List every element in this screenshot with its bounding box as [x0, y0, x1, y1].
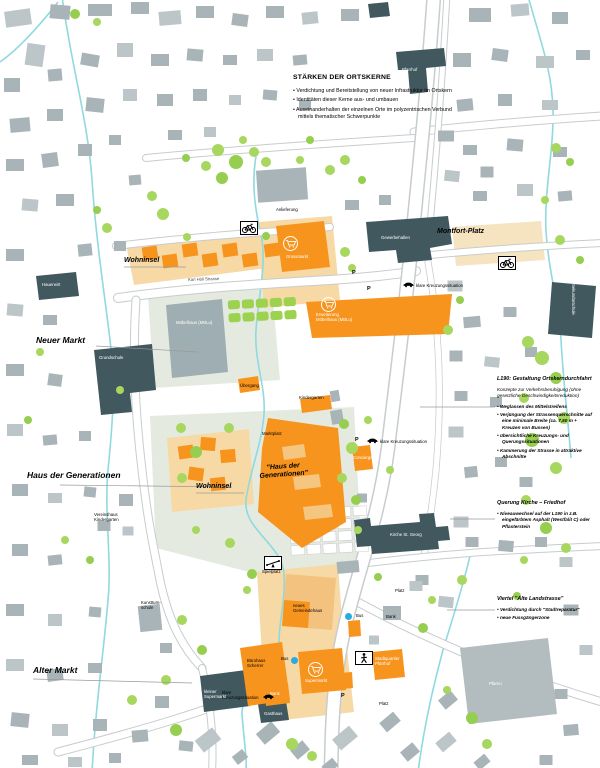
label-wohninsel-sued: Wohninsel	[196, 483, 231, 491]
label-montfort-platz: Montfort-Platz	[437, 228, 484, 236]
label-stadtquartier: Stadtquartier Pfarrhof	[375, 656, 400, 666]
label-alter-markt: Alter Markt	[33, 665, 77, 675]
label-hauerwirt: Hauerwirt	[42, 282, 60, 287]
parking-marker: P	[367, 286, 371, 292]
parking-marker: P	[341, 693, 345, 699]
label-buerohaus: Bürohaus Scherrer	[247, 658, 265, 668]
bicycle-icon	[240, 221, 258, 235]
bus-stop-dot	[345, 613, 352, 620]
label-platz-2: Platz	[379, 701, 389, 706]
cart-icon	[308, 662, 323, 677]
label-pfarrei: Pfarrei	[489, 681, 502, 686]
label-neuer-markt: Neuer Markt	[36, 335, 85, 345]
label-wohninsel-nord: Wohninsel	[124, 257, 159, 265]
map-labels-layer: WohninselNeuer MarktHaus der Generatione…	[0, 0, 600, 768]
pedestrian-icon	[355, 651, 373, 665]
cart-icon	[321, 297, 336, 312]
label-haus-der-generationen: Haus der Generationen	[27, 470, 121, 480]
label-supermarkt: Supermarkt	[305, 678, 327, 683]
label-bus-2: Bus	[281, 656, 288, 661]
masterplan-map: STÄRKEN DER ORTSKERNE Verdichtung und Be…	[0, 0, 600, 768]
label-gemeindehaus: neues Gemeindehaus	[293, 603, 322, 613]
label-bank-grau: Bank	[386, 614, 396, 619]
car-icon	[263, 692, 274, 700]
label-anlieferung: Anlieferung	[276, 207, 298, 212]
label-platz-1: Platz	[395, 588, 405, 593]
parking-marker: P	[355, 437, 359, 443]
label-pfarrhof-top: Pfarrhof	[402, 67, 417, 72]
car-icon	[367, 436, 378, 444]
label-sekundarschule: Sekundarschule	[571, 284, 576, 315]
parking-marker: P	[352, 270, 356, 276]
label-kindergarten: Kindergarten	[299, 395, 324, 400]
label-gewerbehallen: Gewerbehallen	[381, 235, 410, 240]
label-kirche: Kirche St. Georg	[390, 532, 422, 537]
label-kreuzung-1: klare Kreuzungssituation	[416, 283, 463, 288]
bus-stop-dot	[291, 657, 298, 664]
label-grossmarkt: Grossmarkt	[286, 254, 308, 259]
label-hdg-center: "Haus der Generationen"	[259, 462, 308, 482]
label-grundschule: Grundschule	[99, 355, 123, 360]
label-vereinshaus: Vereinshaus Kindergarten	[94, 512, 119, 522]
label-kreuzung-3: klare Kreuzungssituation	[222, 690, 259, 700]
label-erweiterung-moebelhaus: Erweiterung Möbelhaus (MBLu)	[316, 312, 352, 322]
label-kreuzung-2: klare Kreuzungssituation	[380, 439, 427, 444]
bicycle-icon	[498, 256, 516, 270]
label-moebelhaus: Möbelhaus (MBLu)	[176, 320, 212, 325]
label-marktplatz: Marktplatz	[262, 431, 282, 436]
label-karl-holl-strasse: Karl Höll Strasse	[188, 277, 219, 283]
cart-icon	[283, 236, 298, 251]
label-concierge: Concierge	[353, 455, 373, 460]
playground-icon	[264, 556, 282, 570]
label-kleiner-supermarkt: kleiner Supermarkt	[204, 689, 226, 699]
car-icon	[403, 280, 414, 288]
label-bus-1: Bus	[356, 613, 363, 618]
label-uebergang: Übergang	[240, 383, 259, 388]
label-gasthaus: Gasthaus	[264, 711, 282, 716]
label-kunstturnschule: Kunstturn- schule	[141, 600, 161, 610]
